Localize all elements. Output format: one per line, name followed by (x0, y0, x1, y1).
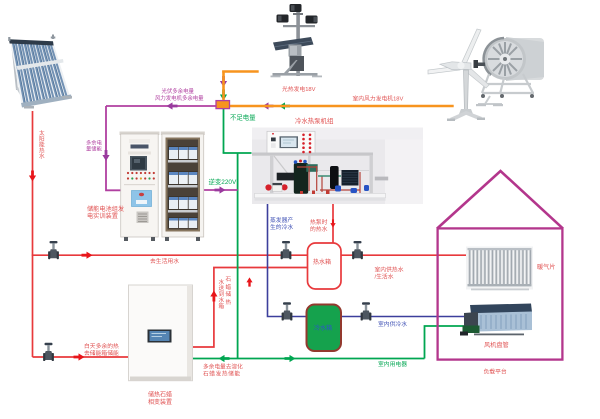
svg-text:光热发电18V: 光热发电18V (282, 85, 316, 93)
svg-text:的热水: 的热水 (310, 225, 328, 233)
svg-text:蒸发器产: 蒸发器产 (270, 216, 293, 224)
svg-text:多余电: 多余电 (86, 139, 103, 147)
svg-text:室内供冷水: 室内供冷水 (378, 320, 407, 328)
svg-text:水: 水 (39, 152, 45, 160)
svg-text:负载平台: 负载平台 (484, 368, 507, 376)
svg-text:储能电池组发: 储能电池组发 (87, 205, 124, 213)
svg-text:热: 热 (226, 298, 232, 306)
svg-text:室内供热水: 室内供热水 (375, 266, 404, 274)
svg-text:多余电量去溶化: 多余电量去溶化 (203, 363, 243, 371)
svg-text:热泵时: 热泵时 (310, 218, 328, 226)
svg-text:蜡: 蜡 (226, 283, 232, 291)
svg-text:白天多余的热: 白天多余的热 (84, 342, 119, 350)
svg-text:风机盘管: 风机盘管 (484, 341, 509, 349)
svg-text:石蜡发热储能: 石蜡发热储能 (203, 370, 241, 378)
svg-text:风力发电机多余电量: 风力发电机多余电量 (155, 94, 204, 102)
svg-text:室内风力发电机18V: 室内风力发电机18V (353, 95, 404, 103)
svg-text:能: 能 (39, 141, 45, 149)
svg-text:相变装置: 相变装置 (148, 398, 172, 406)
svg-text:冷水热泵机组: 冷水热泵机组 (295, 116, 334, 125)
svg-text:去生活用水: 去生活用水 (150, 257, 179, 265)
svg-text:去储能箱储能: 去储能箱储能 (84, 349, 119, 357)
svg-text:箱: 箱 (219, 302, 225, 310)
svg-text:不足电量: 不足电量 (230, 113, 256, 122)
svg-text:阳: 阳 (39, 135, 45, 143)
svg-text:热: 热 (39, 146, 45, 154)
svg-text:光伏多余电量: 光伏多余电量 (162, 87, 195, 95)
svg-text:生的冷水: 生的冷水 (270, 223, 293, 231)
svg-text:到: 到 (219, 291, 225, 298)
svg-text:逆变220V: 逆变220V (209, 177, 237, 186)
svg-text:冷水箱: 冷水箱 (314, 324, 332, 332)
svg-text:暖气片: 暖气片 (537, 263, 556, 271)
svg-text:太: 太 (39, 129, 45, 137)
svg-text:石: 石 (226, 276, 232, 283)
svg-text:送: 送 (219, 284, 225, 292)
svg-text:电实训装置: 电实训装置 (87, 212, 118, 220)
svg-text:水: 水 (219, 278, 225, 286)
svg-text:量储能: 量储能 (86, 145, 103, 153)
svg-text:储: 储 (226, 290, 232, 298)
svg-text:水: 水 (219, 296, 225, 304)
svg-text:储热石蜡: 储热石蜡 (148, 391, 172, 399)
svg-text:/生活水: /生活水 (375, 273, 394, 281)
svg-text:室内用电器: 室内用电器 (378, 360, 407, 368)
svg-text:热水箱: 热水箱 (313, 258, 331, 266)
